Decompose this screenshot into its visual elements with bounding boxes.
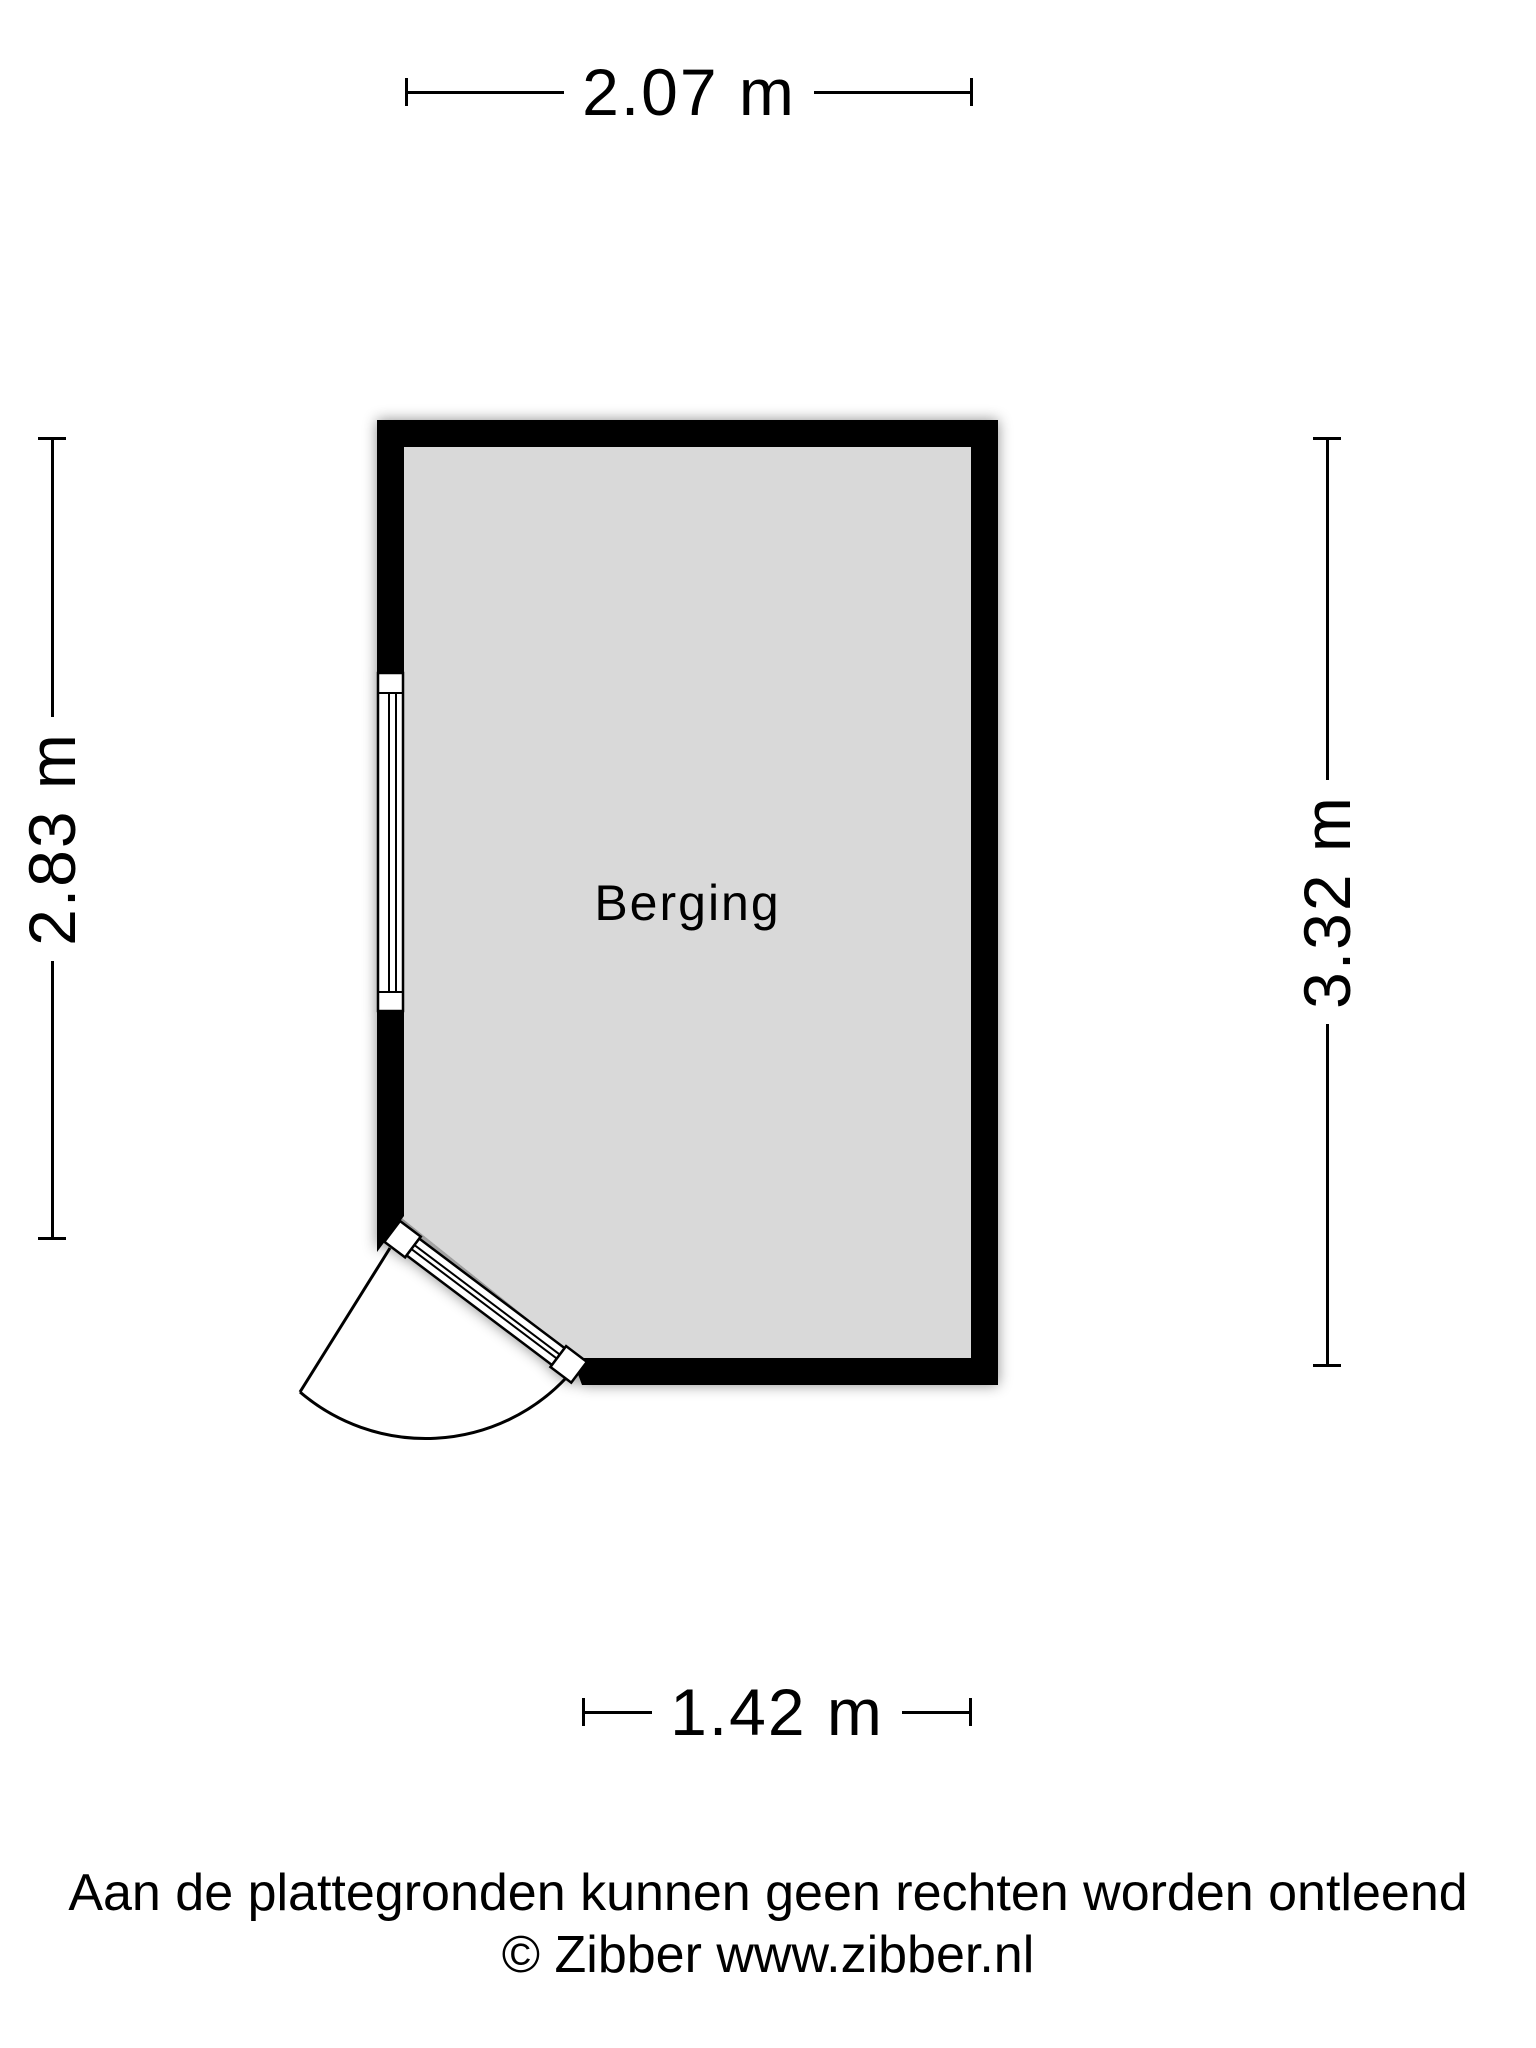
dimension-line [585, 1711, 652, 1714]
dimension-line [1326, 1024, 1329, 1364]
dimension-top-label: 2.07 m [564, 59, 814, 125]
room-label-box: Berging [404, 447, 971, 1358]
dimension-bottom-label: 1.42 m [652, 1679, 902, 1745]
dimension-tick [38, 1237, 66, 1240]
wall-left-lower [377, 1012, 404, 1252]
window-frame [378, 673, 403, 1011]
dimension-line [408, 91, 564, 94]
dimension-line [814, 91, 970, 94]
wall-top [377, 420, 998, 447]
dimension-line [1326, 440, 1329, 780]
wall-left-upper [377, 420, 404, 672]
wall-bottom [572, 1358, 998, 1385]
dimension-top: 2.07 m [405, 59, 973, 125]
dimension-tick [969, 1698, 972, 1726]
dimension-line [51, 440, 54, 717]
footer: Aan de plattegronden kunnen geen rechten… [0, 1862, 1536, 1986]
footer-copyright: © Zibber www.zibber.nl [0, 1924, 1536, 1986]
dimension-left-label: 2.83 m [19, 732, 85, 946]
wall-right [971, 420, 998, 1385]
window [378, 673, 403, 1011]
dimension-tick [1313, 1364, 1341, 1367]
footer-disclaimer: Aan de plattegronden kunnen geen rechten… [0, 1862, 1536, 1924]
dimension-bottom: 1.42 m [582, 1679, 972, 1745]
dimension-left-label-wrap: 2.83 m [19, 717, 85, 961]
dimension-right-label-wrap: 3.32 m [1294, 780, 1360, 1024]
dimension-line [51, 961, 54, 1238]
door-leaf [300, 1248, 390, 1392]
dimension-right-label: 3.32 m [1294, 795, 1360, 1009]
dimension-right: 3.32 m [1294, 437, 1360, 1367]
dimension-left: 2.83 m [19, 437, 85, 1240]
door-swing-arc [300, 1378, 566, 1439]
dimension-tick [970, 78, 973, 106]
dimension-line [902, 1711, 969, 1714]
room-label: Berging [594, 874, 780, 932]
